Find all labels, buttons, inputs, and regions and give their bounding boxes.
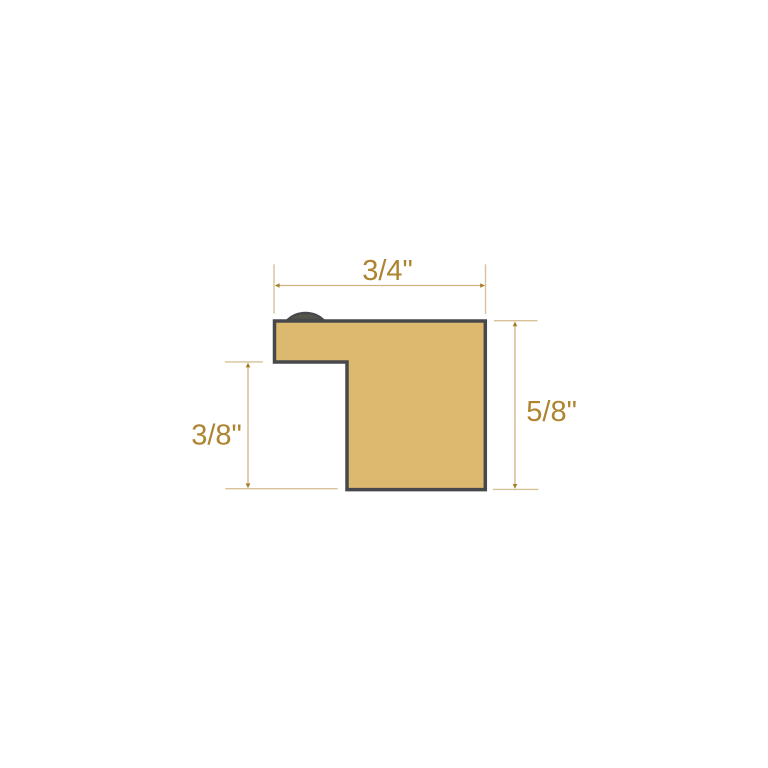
svg-text:3/8": 3/8"	[191, 419, 242, 451]
svg-text:3/4": 3/4"	[362, 255, 413, 287]
svg-text:5/8": 5/8"	[526, 396, 577, 428]
